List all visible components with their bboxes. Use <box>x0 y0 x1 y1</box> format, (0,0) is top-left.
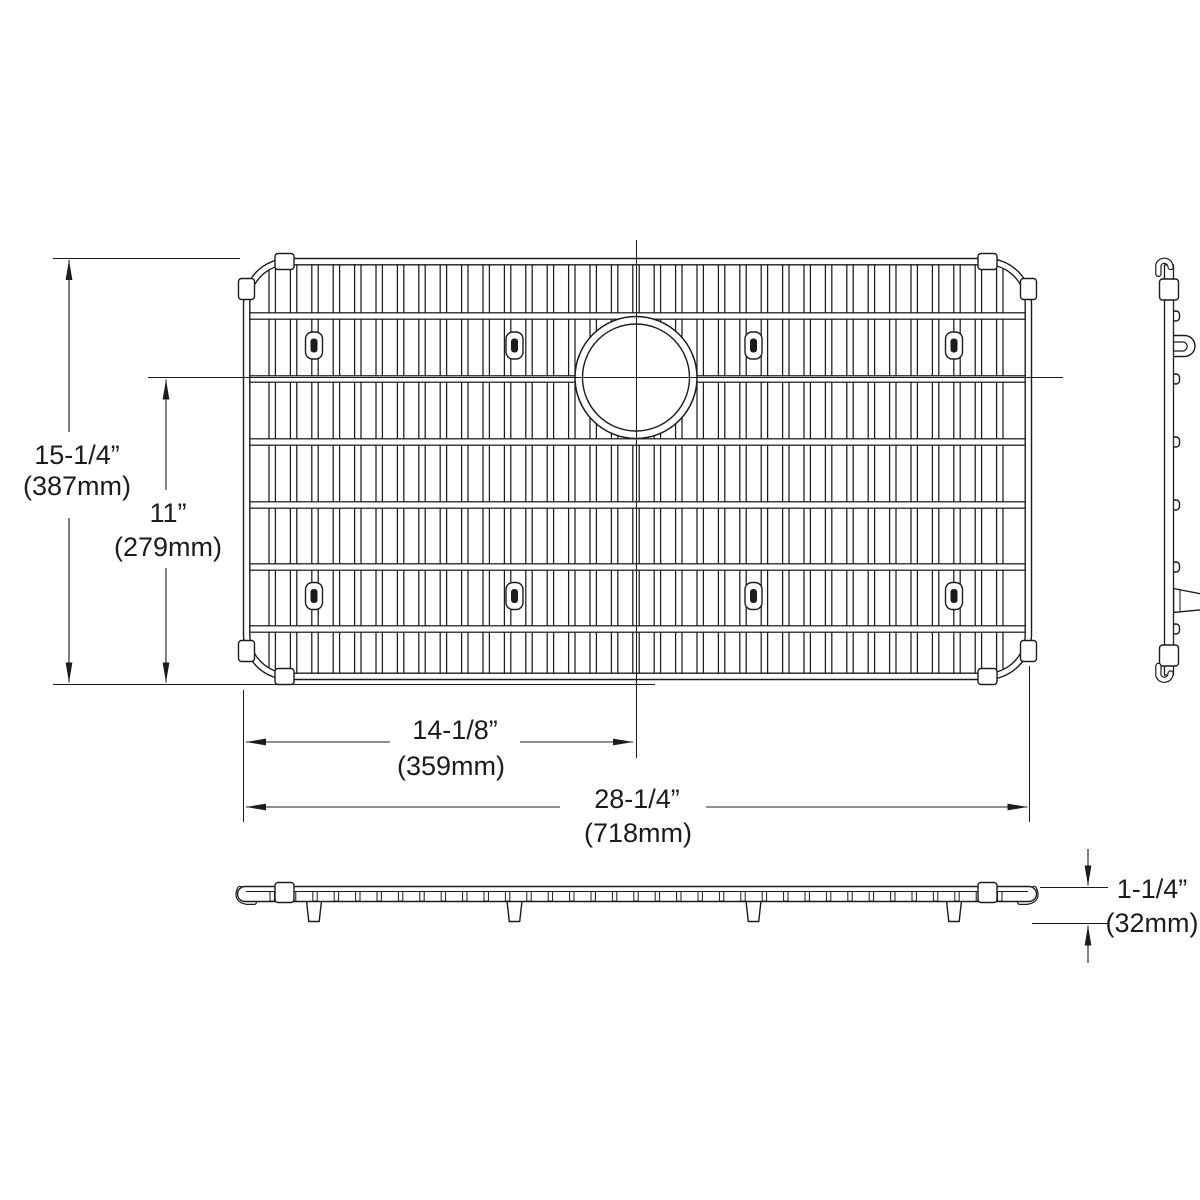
sink-grid-technical-drawing: 15-1/4” (387mm) 11” (279mm) 14-1/8” (359… <box>0 0 1200 1200</box>
grid-foot <box>947 901 962 922</box>
grid-wire-vertical <box>483 263 489 675</box>
grid-foot <box>746 901 761 922</box>
mounting-clip-core <box>511 339 518 353</box>
label-overall-height-metric: (387mm) <box>23 471 131 501</box>
grid-wire-vertical <box>997 263 1003 675</box>
grid-wire-vertical <box>440 263 446 675</box>
grid-wire-vertical <box>504 263 510 675</box>
mounting-clip-core <box>311 339 318 353</box>
grid-foot <box>307 901 322 922</box>
grid-crossbar-horizontal <box>249 564 1027 570</box>
grid-wire-vertical <box>419 263 425 675</box>
dimension-overall-width: 28-1/4” (718mm) <box>246 784 1028 848</box>
label-drain-height-metric: (279mm) <box>114 532 222 562</box>
grid-top-view <box>239 254 1037 685</box>
grid-front-view <box>238 883 1037 922</box>
rim-collar-horizontal <box>275 669 294 685</box>
grid-wire-vertical <box>825 263 831 675</box>
rim-collar-horizontal <box>275 254 294 270</box>
grid-wire-vertical <box>397 263 403 675</box>
grid-crossbar-horizontal <box>249 626 1027 632</box>
front-collar-left <box>275 883 294 903</box>
grid-wire-vertical <box>462 263 468 675</box>
grid-wire-vertical <box>697 263 703 675</box>
grid-wire-vertical <box>333 263 339 675</box>
side-collar-bottom <box>1160 645 1179 666</box>
mounting-clip-core <box>750 339 757 353</box>
label-overall-width-metric: (718mm) <box>584 818 692 848</box>
grid-wire-vertical <box>911 263 917 675</box>
side-foot <box>1174 589 1200 613</box>
mounting-clip-core <box>511 589 518 603</box>
label-drain-width: 14-1/8” <box>412 715 498 745</box>
grid-wire-vertical <box>376 263 382 675</box>
grid-wire-vertical <box>312 263 318 675</box>
grid-wire-vertical <box>761 263 767 675</box>
grid-side-view <box>1158 261 1200 680</box>
grid-wire-vertical <box>526 263 532 675</box>
rim-collar-vertical <box>1021 279 1037 300</box>
grid-wire-vertical <box>783 263 789 675</box>
mounting-clip-core <box>750 589 757 603</box>
mounting-clip-core <box>951 339 958 353</box>
front-collar-right <box>978 883 997 903</box>
dimension-drain-width: 14-1/8” (359mm) <box>246 715 633 781</box>
rim-collar-vertical <box>1021 641 1037 662</box>
grid-wire-vertical <box>718 263 724 675</box>
grid-crossbar-horizontal <box>249 502 1027 508</box>
grid-wire-vertical <box>890 263 896 675</box>
dimension-drain-height: 11” (279mm) <box>114 380 222 683</box>
grid-wire-vertical <box>740 263 746 675</box>
label-overall-height: 15-1/4” <box>34 440 120 470</box>
side-clip-hook-outer <box>1172 336 1195 357</box>
grid-wire-vertical <box>569 263 575 675</box>
grid-wire-vertical <box>290 263 296 675</box>
dimension-overall-height: 15-1/4” (387mm) <box>23 260 131 683</box>
grid-crossbar-horizontal <box>249 439 1027 445</box>
grid-wire-vertical <box>954 263 960 675</box>
rim-collar-vertical <box>239 641 255 662</box>
grid-wire-vertical <box>932 263 938 675</box>
grid-wire-vertical <box>868 263 874 675</box>
label-drain-height: 11” <box>149 498 186 528</box>
grid-wire-vertical <box>975 263 981 675</box>
grid-wire-vertical <box>590 263 596 675</box>
grid-wire-vertical <box>547 263 553 675</box>
mounting-clip-core <box>951 589 958 603</box>
grid-wire-vertical <box>269 263 275 675</box>
technical-drawing-canvas: 15-1/4” (387mm) 11” (279mm) 14-1/8” (359… <box>0 0 1200 1200</box>
side-collar-top <box>1160 279 1179 300</box>
grid-feet <box>307 901 962 922</box>
rim-collar-vertical <box>239 279 255 300</box>
label-profile-height: 1-1/4” <box>1117 874 1188 904</box>
label-overall-width: 28-1/4” <box>594 784 680 814</box>
grid-foot <box>507 901 522 922</box>
rim-collar-horizontal <box>978 669 997 685</box>
mounting-clip-core <box>311 589 318 603</box>
grid-wire-vertical <box>804 263 810 675</box>
label-profile-height-metric: (32mm) <box>1106 908 1199 938</box>
grid-wire-vertical <box>847 263 853 675</box>
grid-wire-vertical <box>355 263 361 675</box>
dimension-profile-height: 1-1/4” (32mm) <box>1088 849 1199 963</box>
side-rim-wire <box>1165 265 1174 675</box>
grid-wire-vertical <box>676 263 682 675</box>
label-drain-width-metric: (359mm) <box>397 751 505 781</box>
rim-collar-horizontal <box>978 254 997 270</box>
